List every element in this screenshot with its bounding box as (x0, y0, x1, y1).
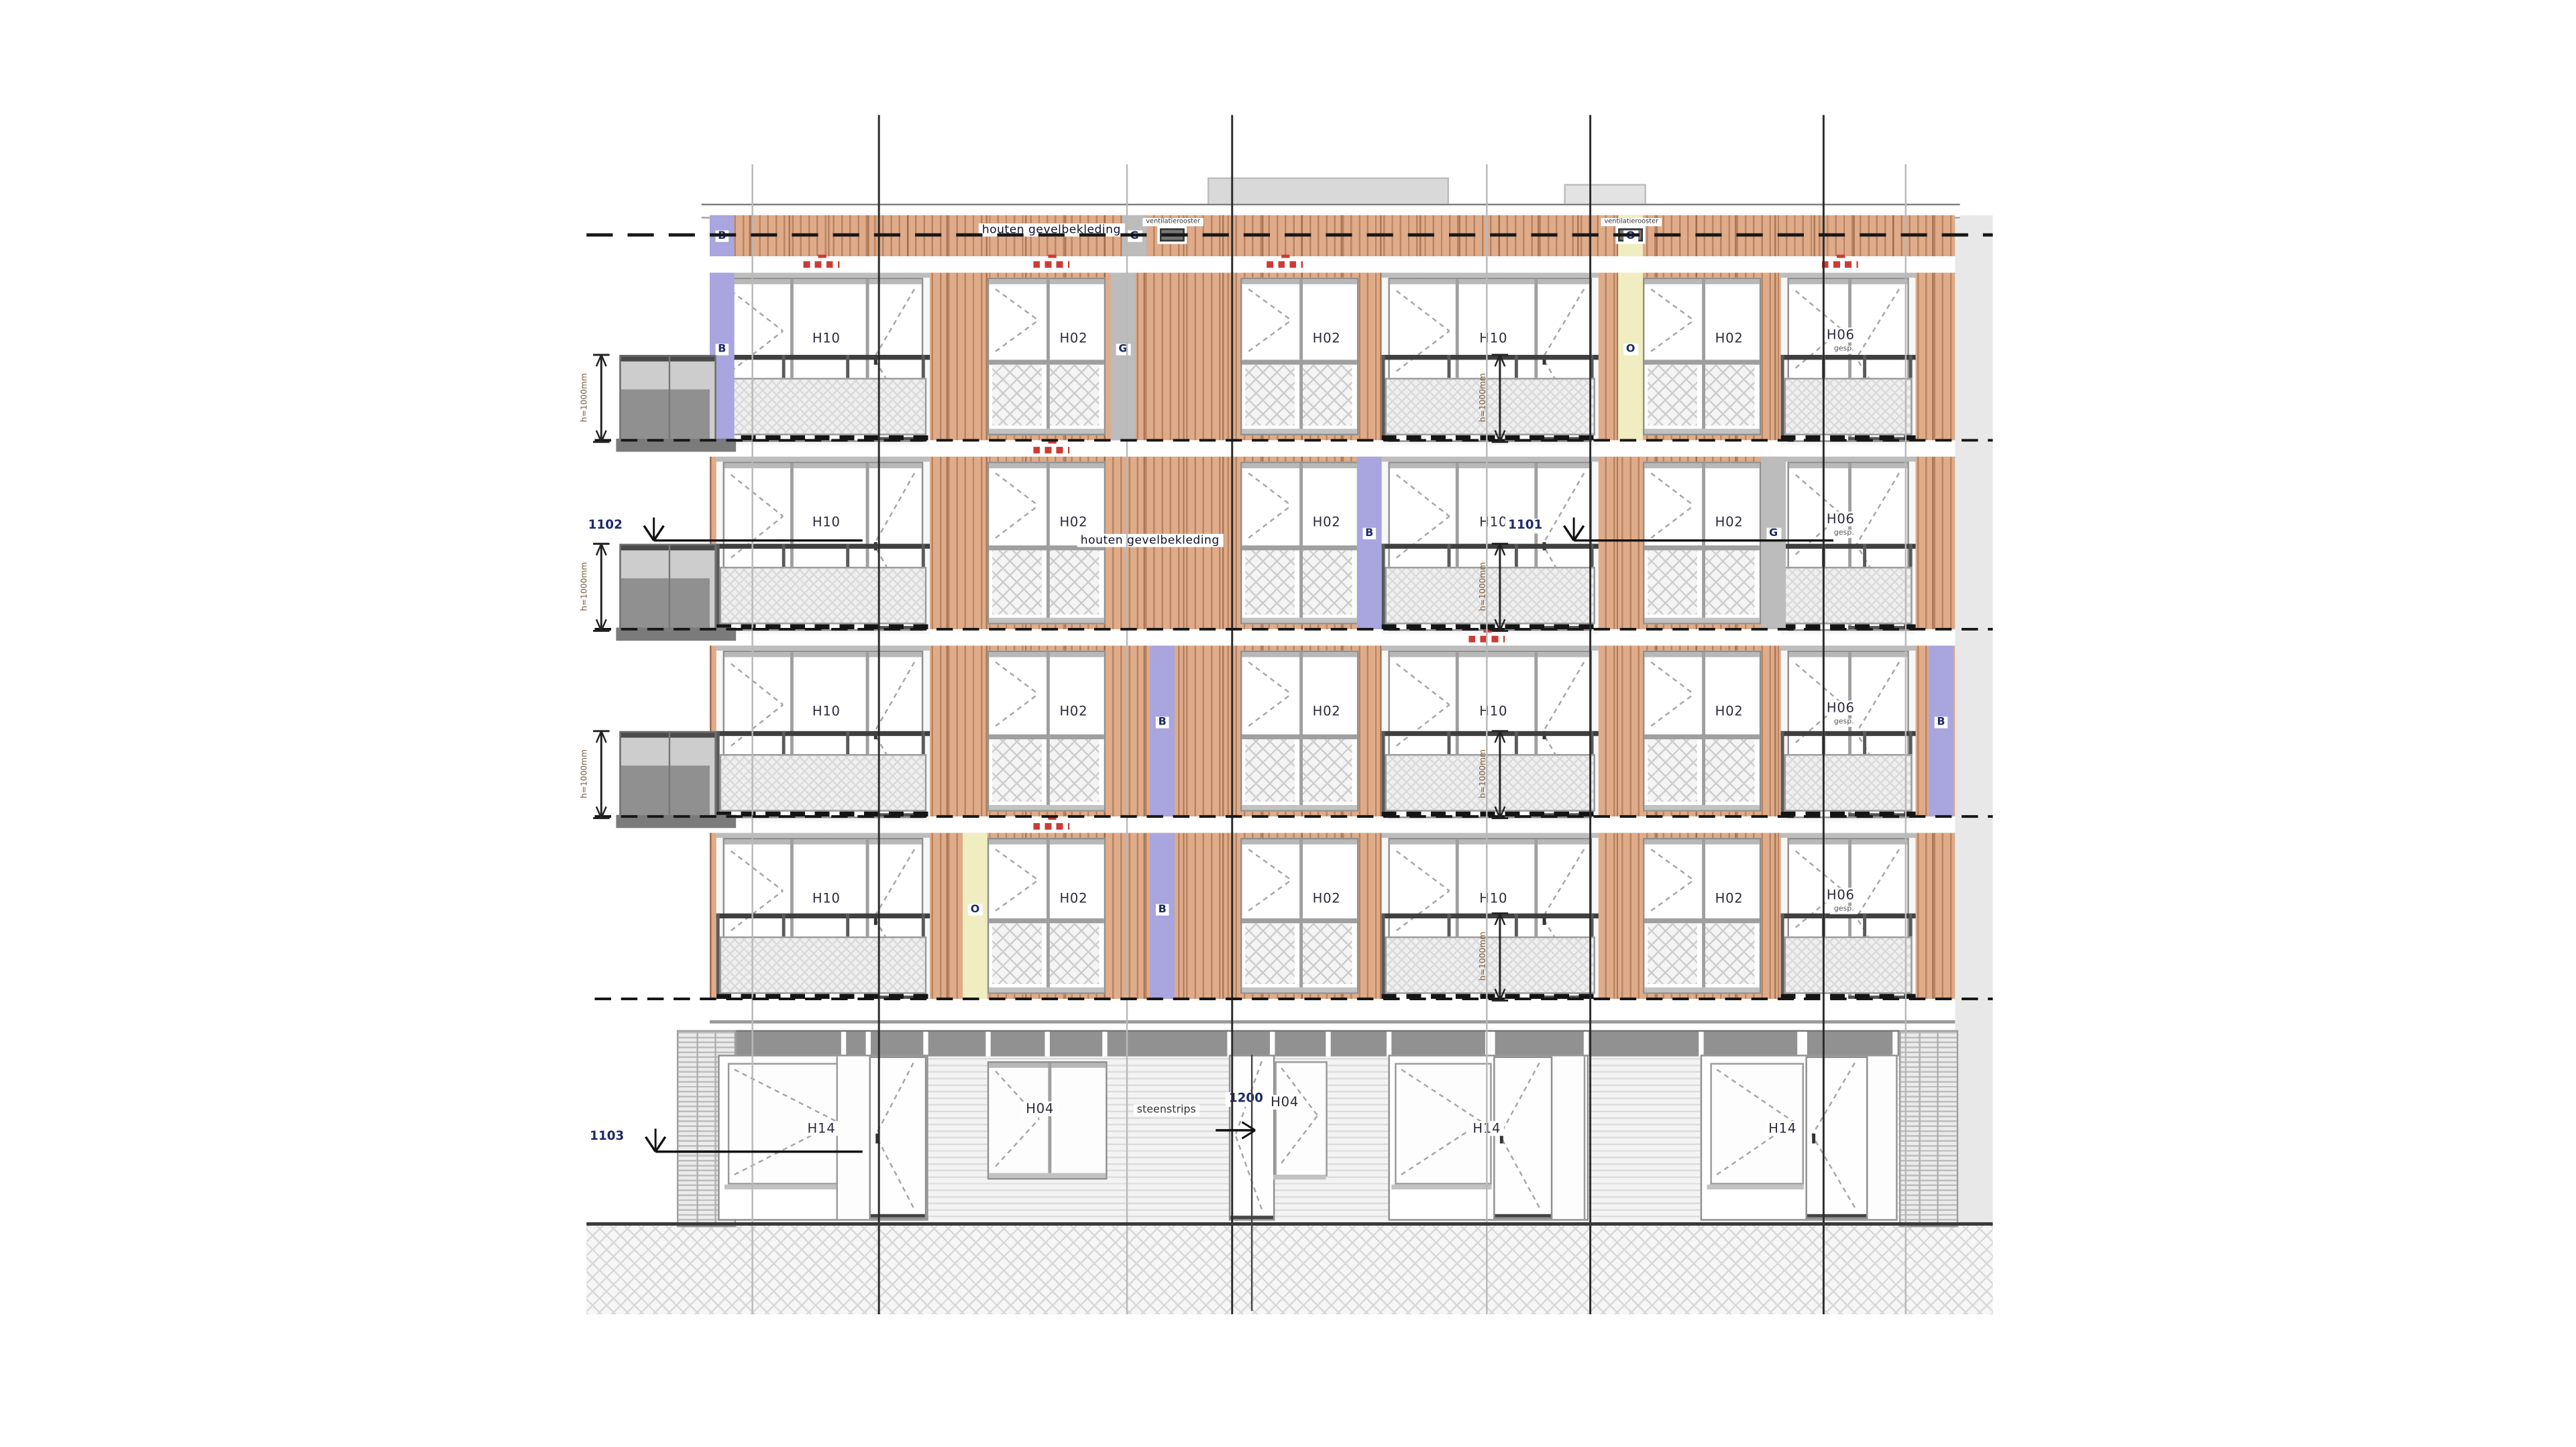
level-marker-arrow (654, 526, 664, 541)
level-marker-arrow (1242, 1122, 1255, 1130)
drawing-stage: BGOventilatieroosterventilatieroosterhou… (0, 0, 2576, 1447)
level-marker-arrow (1242, 1130, 1255, 1138)
level-marker-arrow (655, 1137, 665, 1152)
architectural-elevation-drawing: BGOventilatieroosterventilatieroosterhou… (0, 0, 2576, 1447)
level-marker-arrow (1574, 526, 1584, 541)
layer-gridlines (0, 0, 2576, 1447)
level-marker-arrow (645, 1137, 655, 1152)
level-marker-arrow (1564, 526, 1574, 541)
level-marker-arrow (644, 526, 654, 541)
